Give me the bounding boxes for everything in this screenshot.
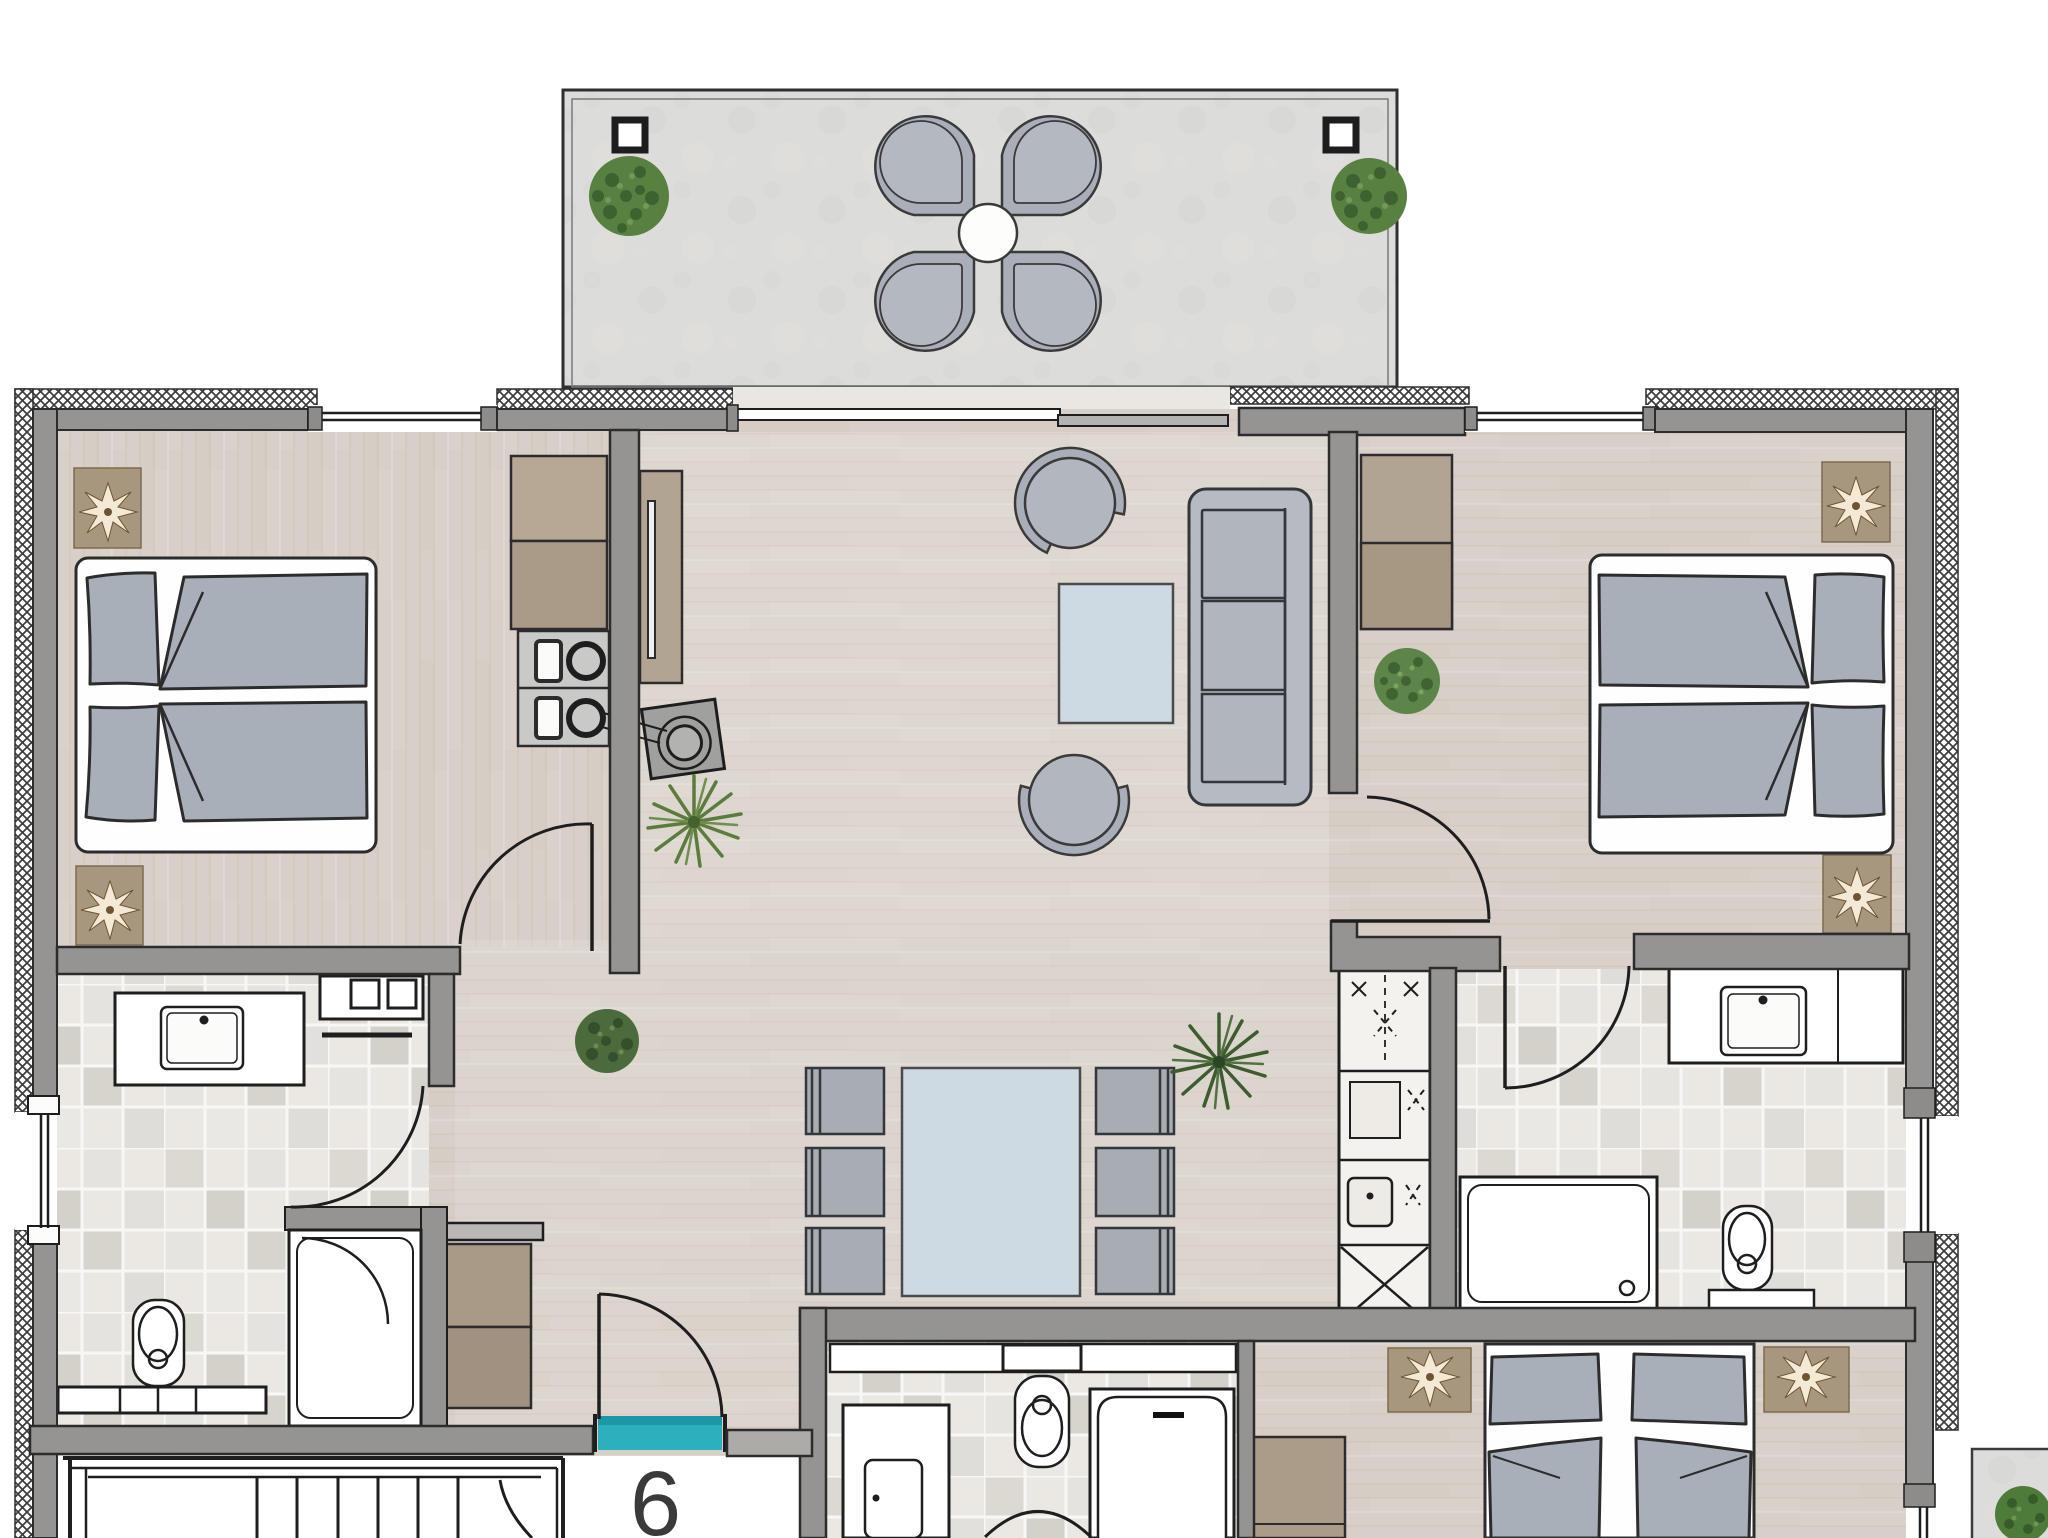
svg-text:6: 6 bbox=[630, 1453, 681, 1538]
